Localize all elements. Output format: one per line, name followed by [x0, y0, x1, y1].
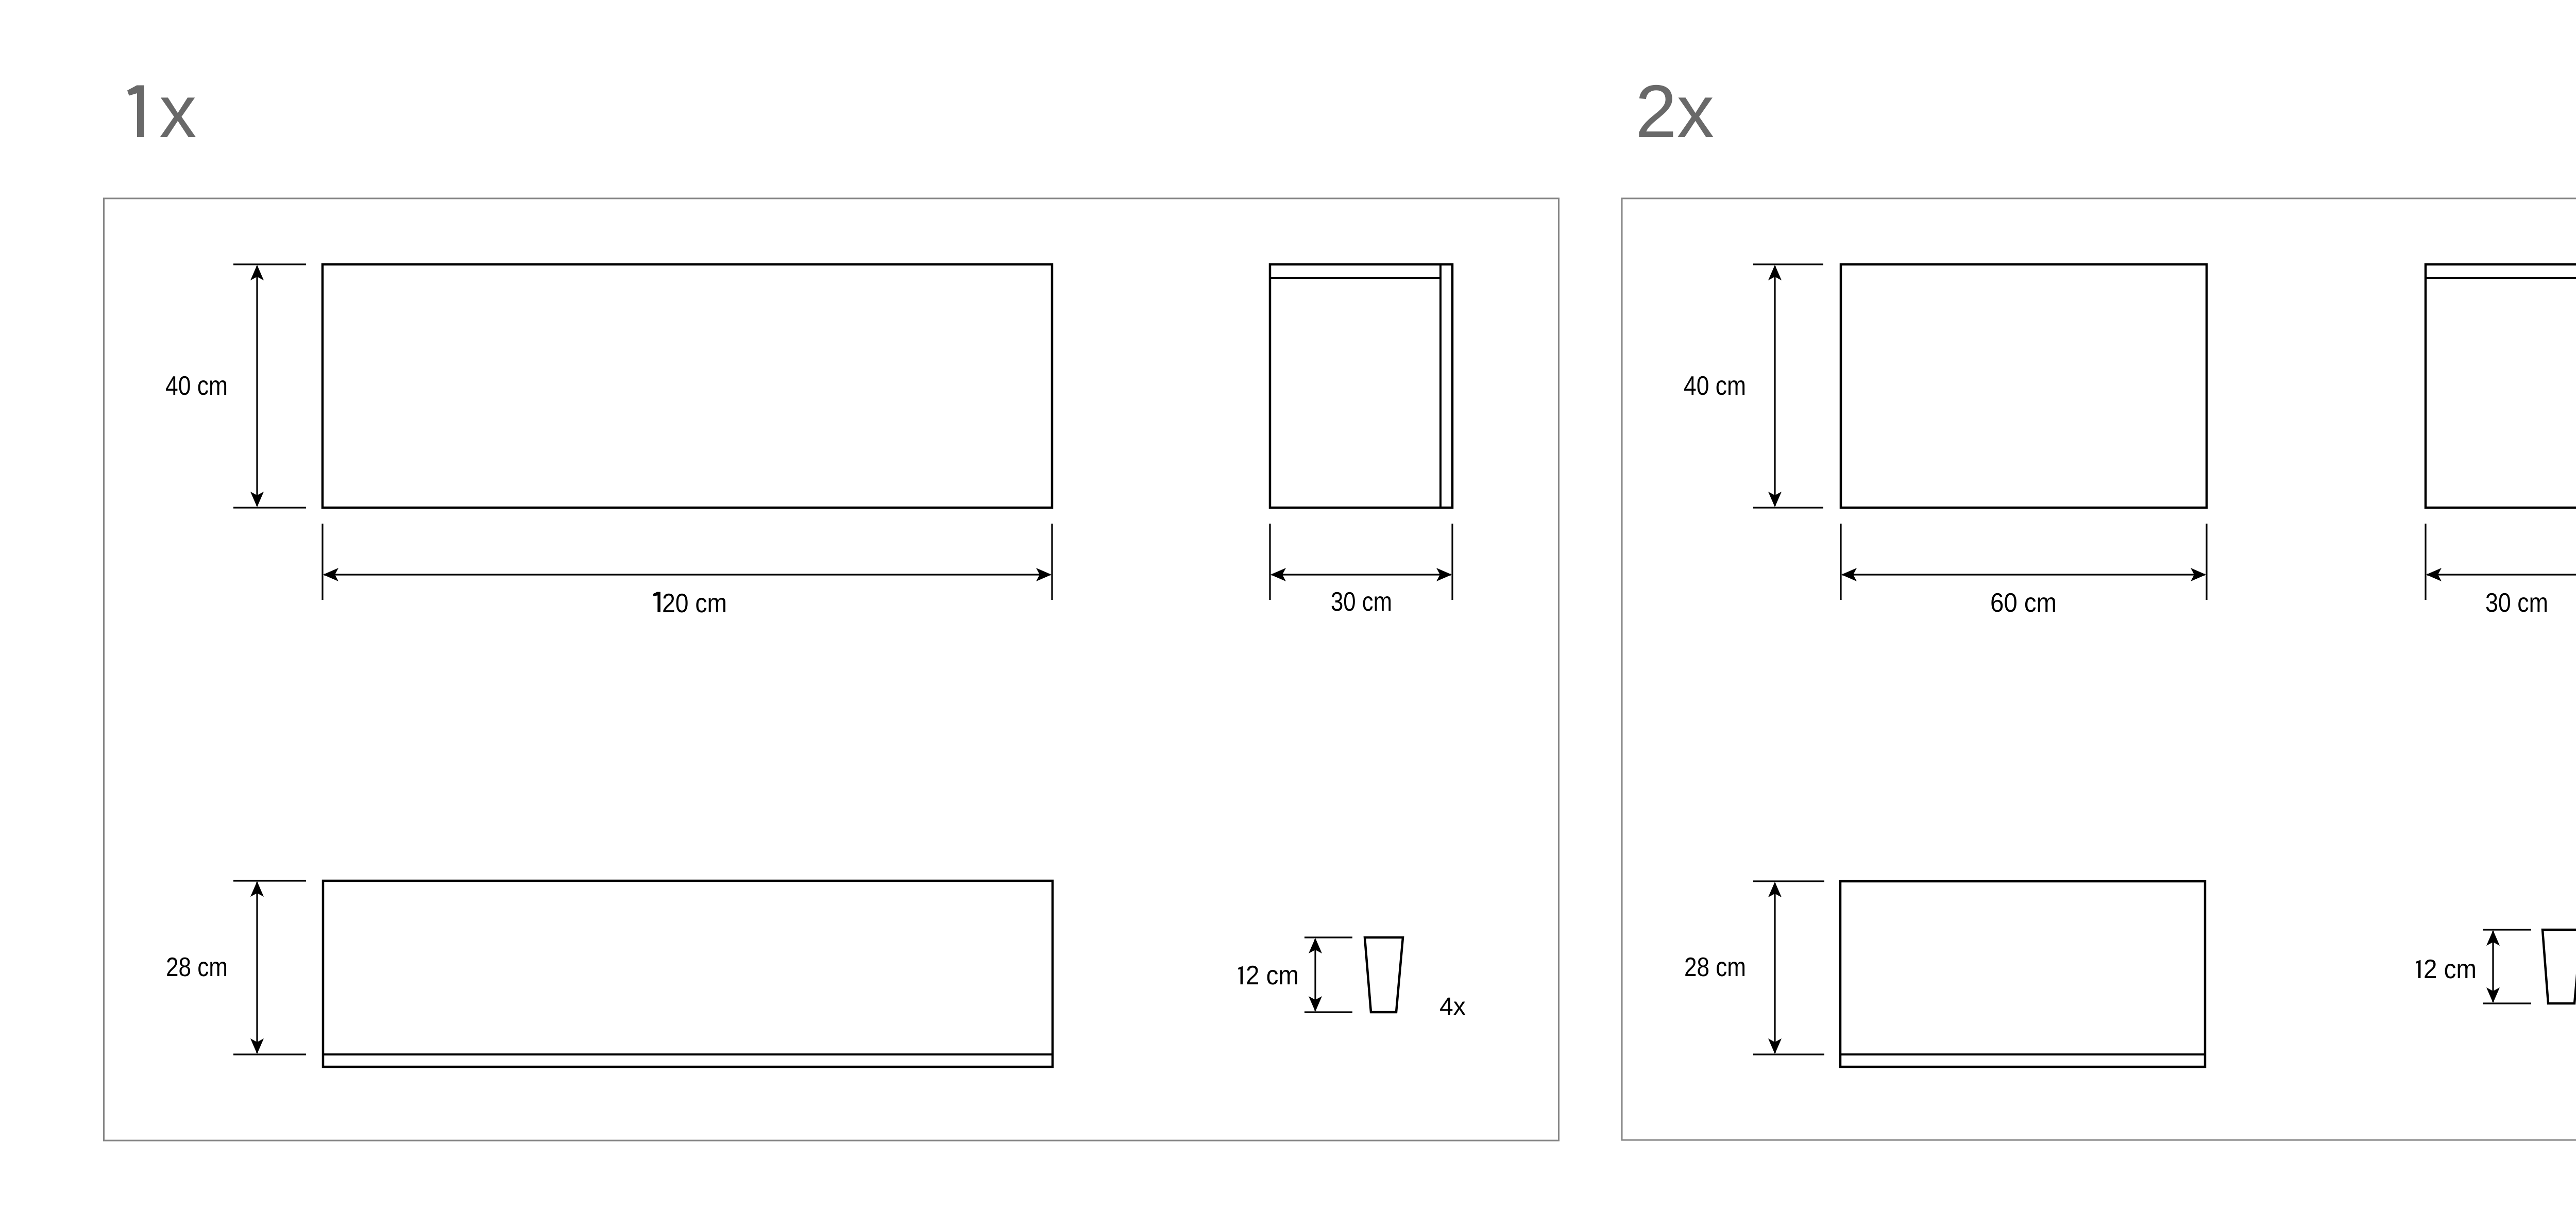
svg-text:20 cm: 20 cm — [662, 589, 727, 618]
svg-text:2x: 2x — [1635, 70, 1714, 153]
svg-text:28 cm: 28 cm — [166, 952, 228, 982]
svg-text:40 cm: 40 cm — [165, 371, 228, 401]
svg-text:28 cm: 28 cm — [1684, 952, 1746, 982]
svg-text:2 cm: 2 cm — [2424, 954, 2477, 984]
svg-text:x: x — [159, 70, 197, 153]
svg-text:30 cm: 30 cm — [2485, 588, 2548, 618]
svg-text:60 cm: 60 cm — [1990, 588, 2057, 618]
svg-text:30 cm: 30 cm — [1331, 587, 1392, 617]
svg-text:4x: 4x — [1439, 993, 1466, 1020]
svg-text:2 cm: 2 cm — [1246, 961, 1299, 991]
svg-text:40 cm: 40 cm — [1684, 371, 1746, 401]
